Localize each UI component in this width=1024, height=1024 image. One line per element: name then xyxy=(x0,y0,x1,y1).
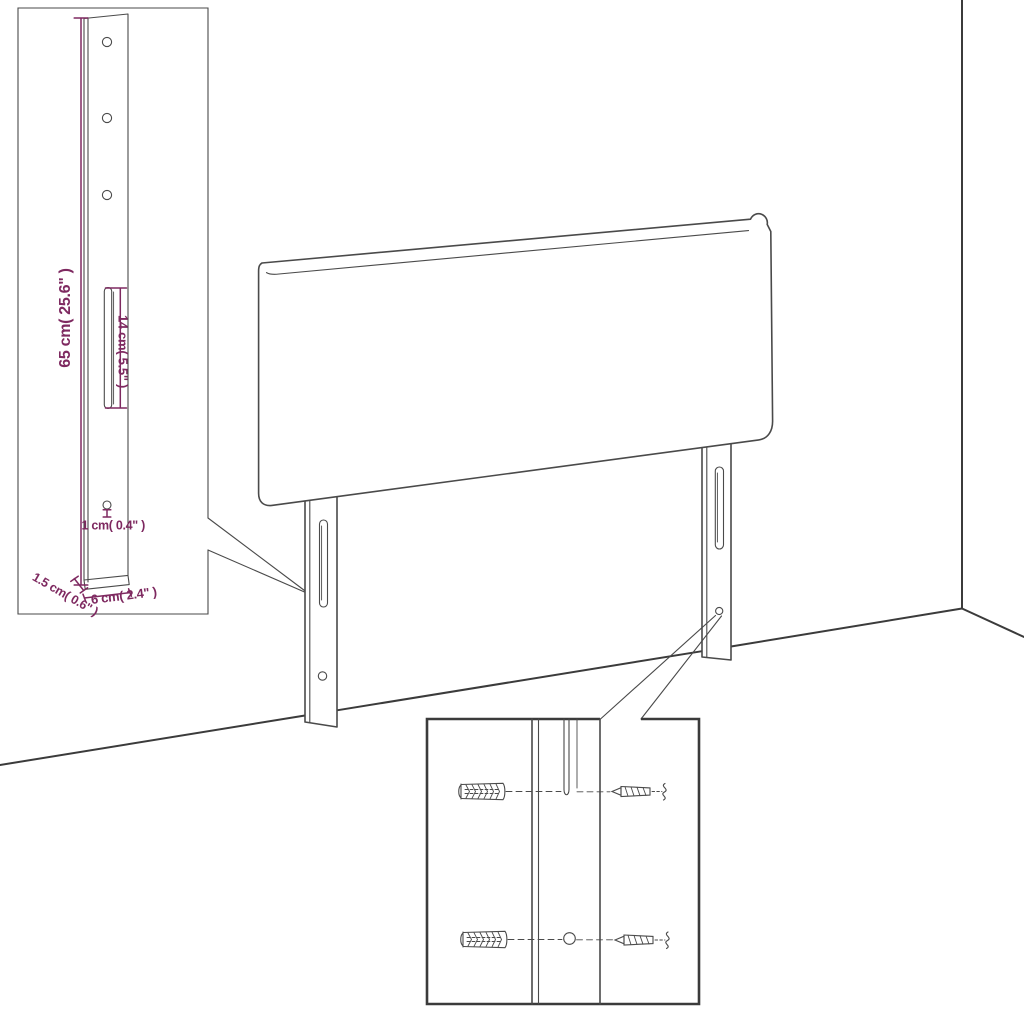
wall-floor-line-left xyxy=(0,609,962,766)
screw-icon xyxy=(612,784,666,801)
bracket-bottom-hole xyxy=(103,501,111,509)
screw-icon xyxy=(615,932,669,949)
product-diagram-headboard: 65 cm( 25.6" ) 14 cm( 5.5" ) 1 cm( 0.4" … xyxy=(0,0,1024,1024)
bracket-hole-3 xyxy=(102,190,111,199)
headboard-left-leg xyxy=(305,497,337,727)
bracket-hole-1 xyxy=(102,37,111,46)
strip-slot xyxy=(564,719,569,795)
dimension-label-slot: 14 cm( 5.5" ) xyxy=(116,315,131,388)
dimension-annotations: 65 cm( 25.6" ) 14 cm( 5.5" ) 1 cm( 0.4" … xyxy=(30,18,158,619)
headboard-panel xyxy=(259,214,773,506)
wall-plug-icon xyxy=(459,783,505,799)
mounting-detail-inset-border xyxy=(427,719,699,1004)
bracket-slot xyxy=(104,288,111,409)
mounting-detail-inset xyxy=(427,719,699,1004)
leg-bracket-drawing xyxy=(84,14,129,589)
dimension-label-hole: 1 cm( 0.4" ) xyxy=(82,519,146,533)
leg-strip-front-view xyxy=(532,719,600,1004)
dimension-label-height: 65 cm( 25.6" ) xyxy=(57,268,74,367)
wall-floor-line-right xyxy=(962,609,1024,638)
leg-detail-callout-lines xyxy=(208,518,305,592)
hardware-row-lower xyxy=(461,931,669,948)
headboard-right-leg xyxy=(702,444,731,660)
strip-hole xyxy=(564,933,576,945)
bracket-hole-2 xyxy=(102,113,111,122)
hardware-row-upper xyxy=(459,783,666,800)
leg-detail-inset: 65 cm( 25.6" ) 14 cm( 5.5" ) 1 cm( 0.4" … xyxy=(18,8,208,619)
wall-plug-icon xyxy=(461,931,507,947)
